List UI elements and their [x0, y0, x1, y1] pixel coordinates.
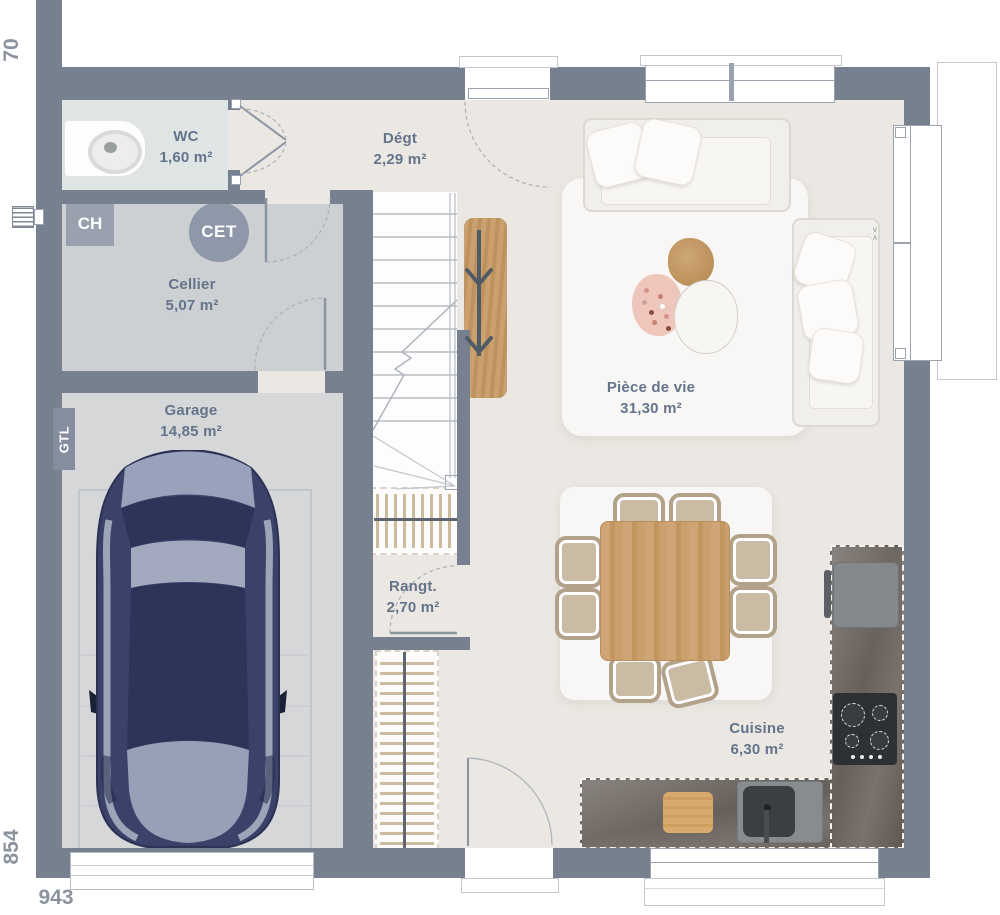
- electrical-gtl: GTL: [53, 408, 75, 470]
- bay-divider: [894, 242, 911, 244]
- room-area: 2,29 m²: [373, 149, 426, 170]
- dining-table: [600, 521, 730, 661]
- dining-chair: [729, 534, 777, 586]
- entry-door-slab: [468, 88, 549, 99]
- bay-end-cap: [895, 127, 906, 138]
- fridge: [833, 562, 899, 628]
- cutting-board: [663, 792, 713, 833]
- window-top-sill: [640, 55, 842, 66]
- window-mullion: [729, 63, 734, 101]
- floor-plan: CET CH GTL: [0, 0, 1000, 915]
- window-frame-line: [651, 862, 878, 863]
- room-name: Pièce de vie: [607, 377, 695, 398]
- dimension-left: 854: [0, 823, 24, 871]
- room-name: WC: [159, 126, 212, 147]
- room-area: 31,30 m²: [607, 398, 695, 419]
- dining-chair: [729, 586, 777, 638]
- wardrobe-shelves: [375, 650, 439, 850]
- room-area: 1,60 m²: [159, 147, 212, 168]
- garage-door-line: [71, 875, 313, 876]
- door-hinge: [231, 99, 241, 109]
- wall-right-lower: [904, 357, 930, 878]
- room-area: 5,07 m²: [165, 295, 218, 316]
- garage-door: [70, 852, 314, 890]
- room-name: Rangt.: [386, 576, 439, 597]
- wc-basin-drain: [104, 142, 117, 153]
- fridge-handle: [824, 570, 831, 618]
- window-kitchen: [650, 848, 879, 880]
- rear-door-opening: [465, 848, 553, 878]
- room-area: 14,85 m²: [160, 421, 222, 442]
- console-sideboard: [464, 218, 507, 398]
- room-label-cuisine: Cuisine 6,30 m²: [729, 718, 785, 760]
- pillow: [632, 116, 703, 187]
- dimension-bottom: 943: [24, 886, 88, 910]
- wall-storage-bottom: [373, 637, 470, 650]
- ch-label: CH: [78, 214, 103, 234]
- room-name: Garage: [160, 400, 222, 421]
- wardrobe-rail: [374, 518, 457, 521]
- entry-door-sill: [459, 56, 558, 68]
- room-area: 6,30 m²: [729, 739, 785, 760]
- dining-chair: [555, 588, 603, 640]
- rear-door-threshold: [461, 878, 559, 893]
- wall-wc-cellier-stub: [330, 190, 343, 204]
- room-name: Cellier: [165, 274, 218, 295]
- wall-cellier-garage-stub: [325, 371, 343, 393]
- room-name: Cuisine: [729, 718, 785, 739]
- garage-door-line: [71, 865, 313, 866]
- bay-end-cap: [895, 348, 906, 359]
- burner: [845, 734, 859, 748]
- wall-cellier-garage: [62, 371, 258, 393]
- cooktop-controls: [851, 755, 855, 759]
- utility-meter-icon: [12, 206, 34, 228]
- room-label-cellier: Cellier 5,07 m²: [165, 274, 218, 316]
- gtl-label: GTL: [57, 425, 72, 453]
- window-frame-line: [646, 80, 834, 81]
- window-kitchen-sill: [644, 878, 885, 906]
- cet-label: CET: [201, 222, 237, 242]
- room-label-rangement: Rangt. 2,70 m²: [386, 576, 439, 618]
- wall-wc-cellier: [62, 190, 265, 204]
- wall-right-upper: [904, 67, 930, 127]
- burner: [841, 703, 865, 727]
- pillow: [807, 327, 866, 386]
- staircase-treads: [373, 192, 457, 422]
- wardrobe-hanging: [370, 487, 460, 555]
- room-area: 2,70 m²: [386, 597, 439, 618]
- window-mark-up: ∧: [872, 234, 878, 242]
- wc-basin: [88, 130, 142, 174]
- boiler-ch: CH: [66, 202, 114, 246]
- dimension-top-left: 70: [0, 28, 24, 72]
- room-label-wc: WC 1,60 m²: [159, 126, 212, 168]
- coffee-table-terrazzo-white: [674, 280, 738, 354]
- car: [85, 450, 291, 850]
- wall-staircase: [343, 190, 373, 848]
- terrace: [937, 62, 997, 380]
- faucet: [764, 810, 769, 843]
- hanging-clothes: [376, 494, 454, 548]
- room-label-degagement: Dégt 2,29 m²: [373, 128, 426, 170]
- burner: [872, 705, 888, 721]
- sink-bowl: [743, 786, 795, 837]
- water-heater-cet: CET: [189, 202, 249, 262]
- window-annotation: ∨ ∧: [872, 226, 878, 242]
- sliding-bay-window: [893, 125, 942, 361]
- sill-line: [645, 888, 884, 889]
- shelf-divider: [403, 652, 406, 848]
- burner: [870, 731, 889, 750]
- shelf-lines: [380, 655, 434, 845]
- coffee-table-wood: [668, 238, 714, 286]
- dining-chair: [555, 536, 603, 588]
- room-label-garage: Garage 14,85 m²: [160, 400, 222, 442]
- room-name: Dégt: [373, 128, 426, 149]
- wall-staircase-right: [457, 330, 470, 565]
- window-top: [645, 63, 835, 103]
- room-label-piece-de-vie: Pièce de vie 31,30 m²: [607, 377, 695, 419]
- door-hinge: [231, 175, 241, 185]
- dining-chair: [609, 655, 661, 703]
- utility-meter-bracket: [34, 209, 44, 225]
- cooktop: [833, 693, 897, 765]
